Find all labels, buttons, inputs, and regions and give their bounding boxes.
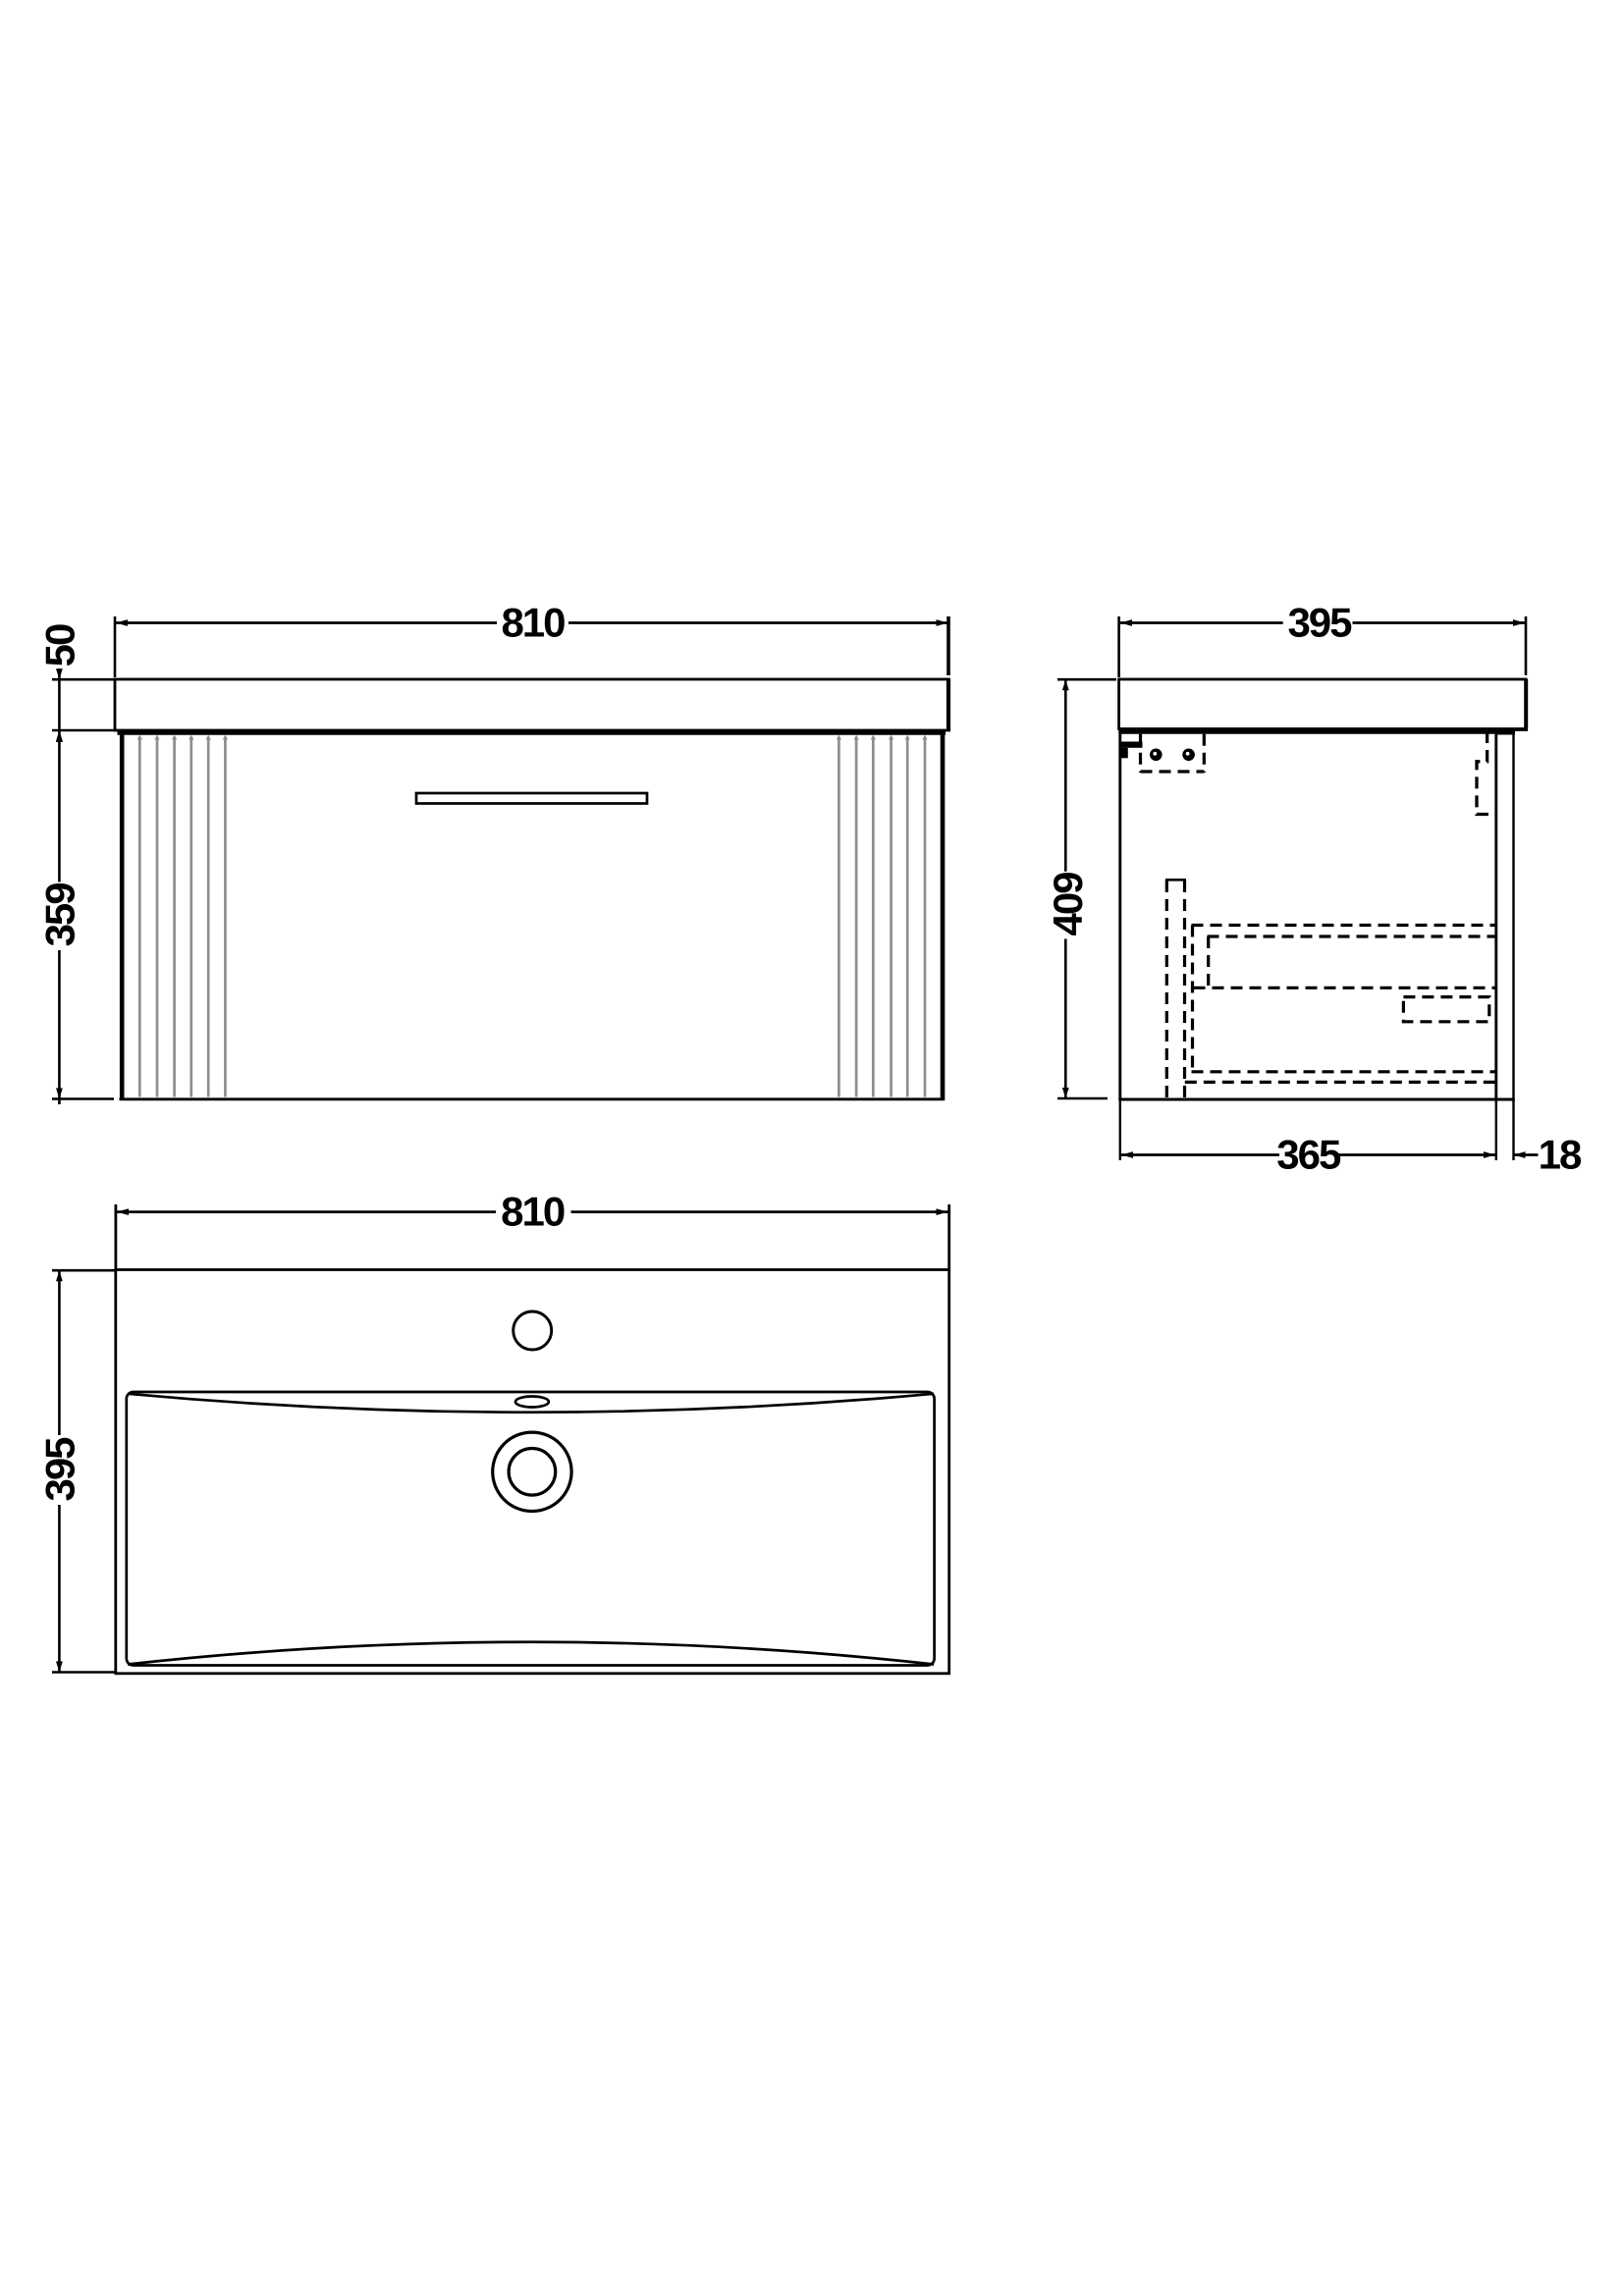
svg-text:810: 810 (501, 599, 565, 645)
svg-text:395: 395 (37, 1437, 83, 1502)
svg-text:395: 395 (1287, 599, 1352, 645)
svg-text:365: 365 (1276, 1131, 1341, 1177)
svg-text:359: 359 (37, 883, 83, 947)
svg-text:18: 18 (1539, 1131, 1582, 1177)
svg-text:810: 810 (501, 1188, 565, 1234)
svg-text:409: 409 (1045, 873, 1091, 936)
svg-text:50: 50 (37, 624, 83, 667)
